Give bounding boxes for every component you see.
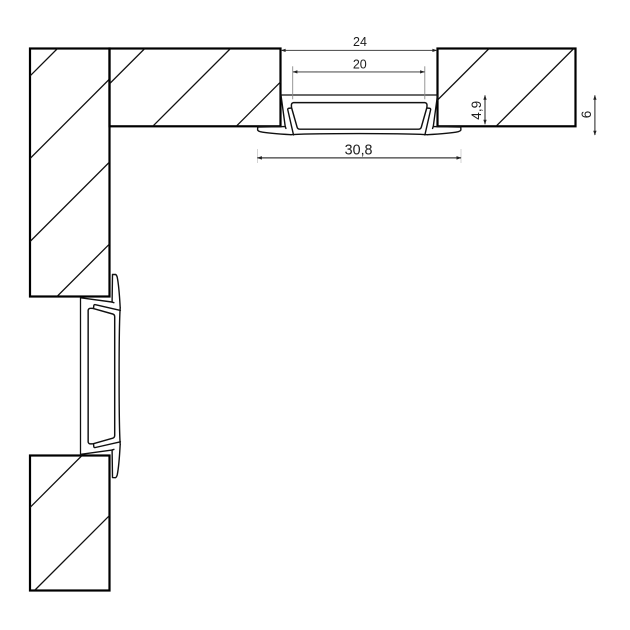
svg-text:30,8: 30,8	[345, 142, 373, 158]
svg-text:6: 6	[579, 111, 594, 119]
svg-text:20: 20	[353, 57, 367, 71]
svg-text:4,9: 4,9	[469, 101, 484, 120]
svg-text:24: 24	[353, 35, 367, 49]
